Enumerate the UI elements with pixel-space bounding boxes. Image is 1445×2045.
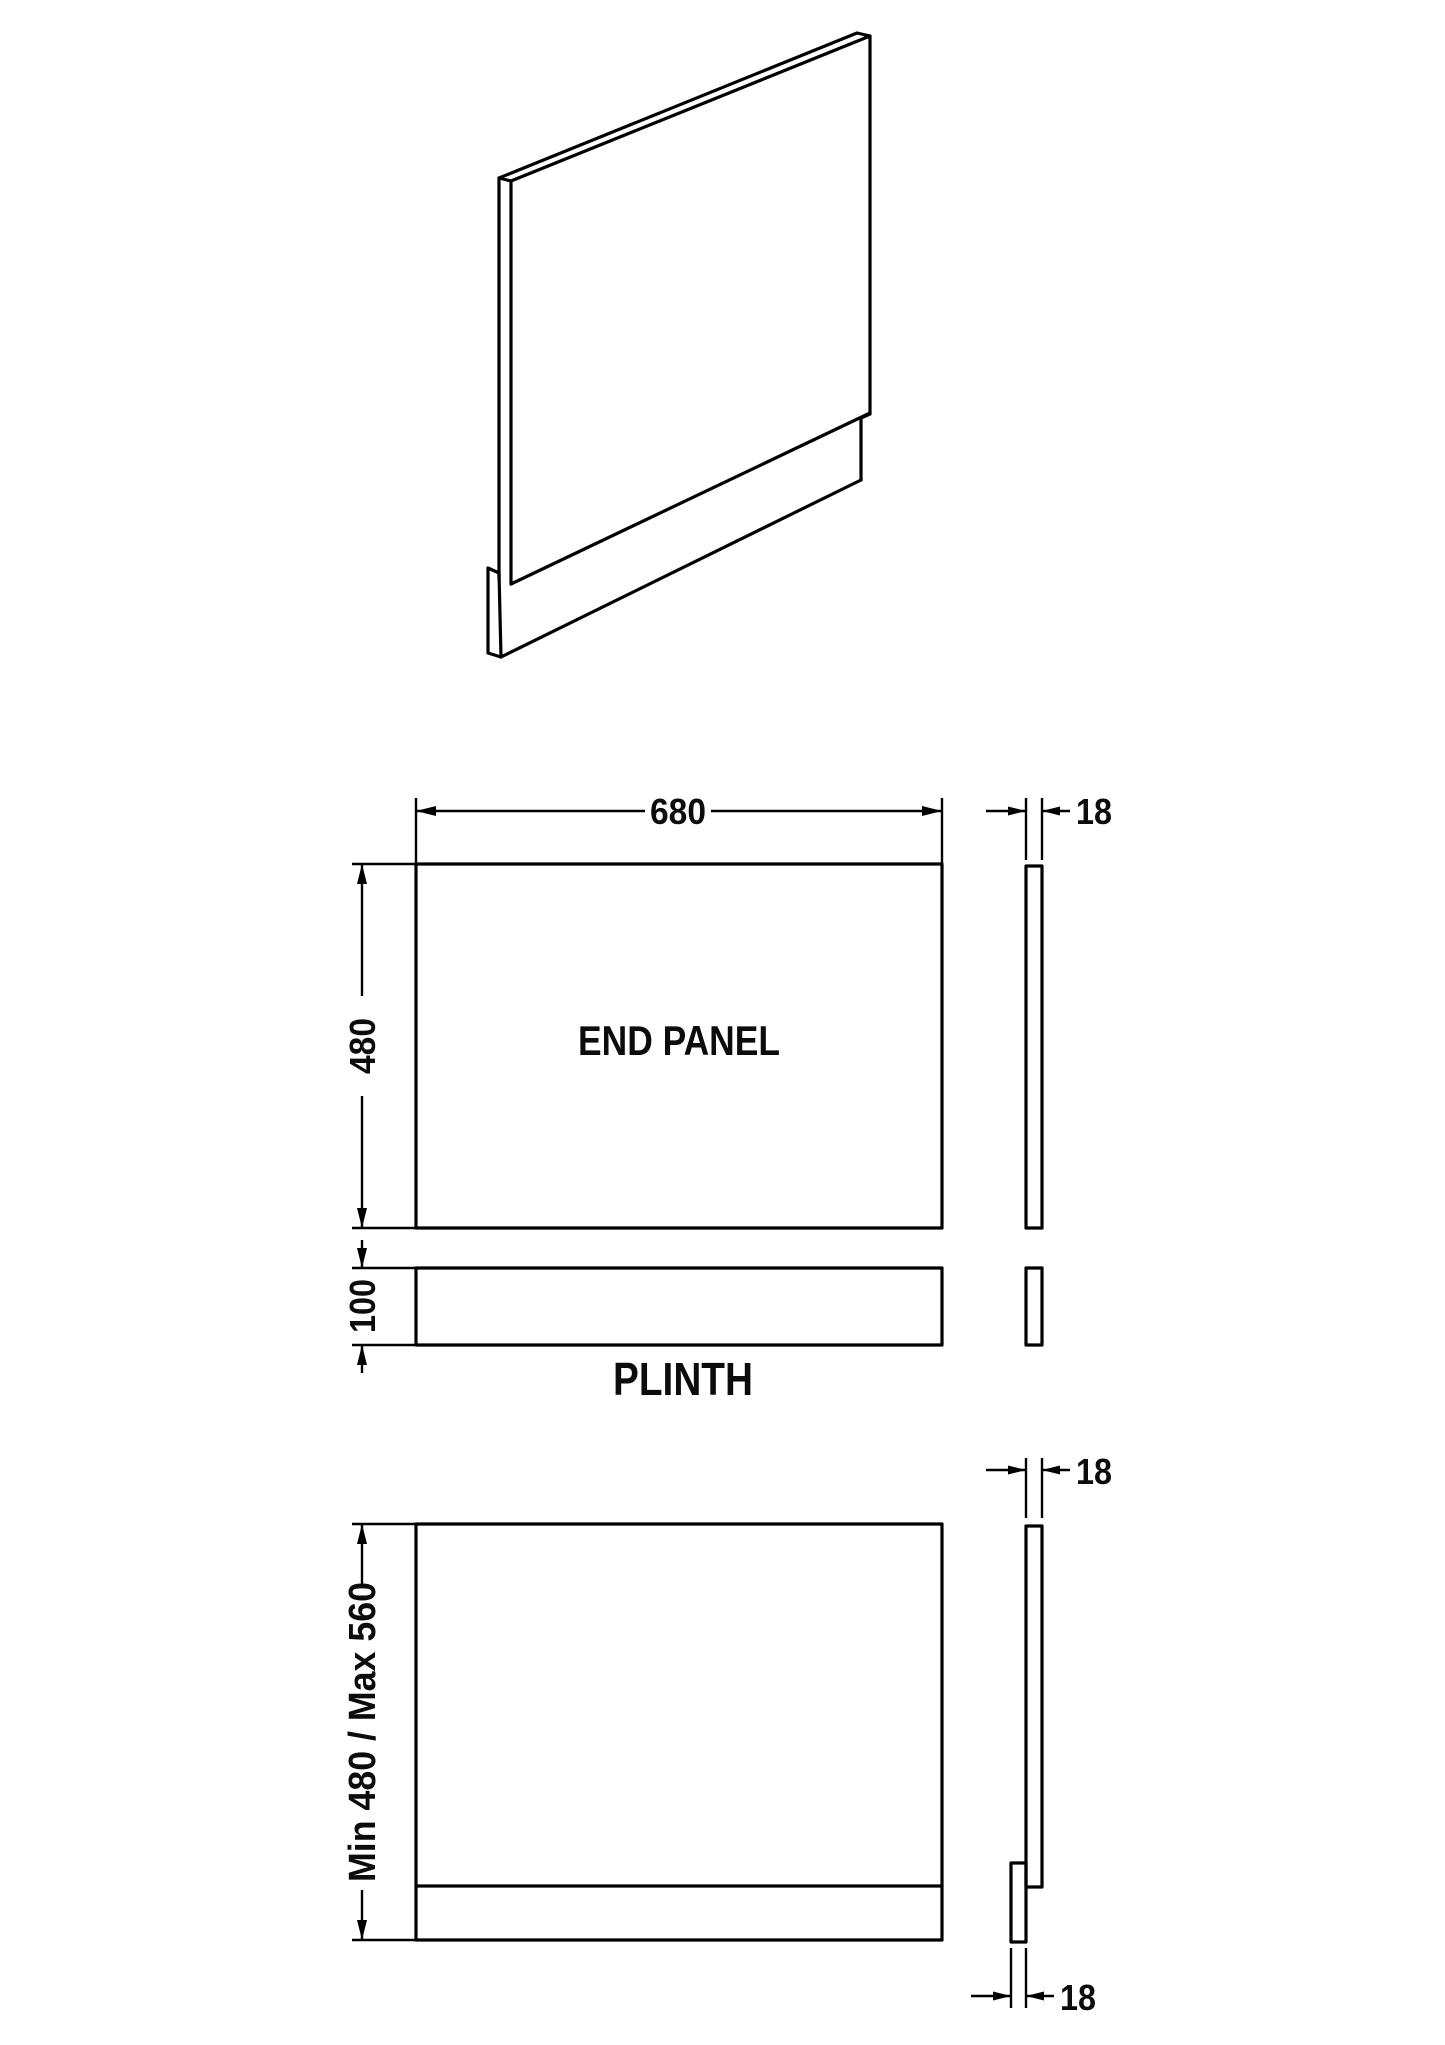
plinth-label: PLINTH <box>613 1353 753 1405</box>
end-panel-side-rect <box>1026 866 1042 1228</box>
front-view-end-panel: END PANEL 680 480 <box>342 791 1112 1228</box>
end-panel-label: END PANEL <box>578 1017 780 1064</box>
dim-18-assembled-plinth: 18 <box>971 1948 1096 2018</box>
technical-drawing-page: END PANEL 680 480 <box>0 0 1445 2045</box>
dim-18-assembled-panel: 18 <box>986 1451 1112 1518</box>
dim-480-text: 480 <box>342 1018 383 1074</box>
dim-18-panel: 18 <box>986 791 1112 860</box>
iso-plinth-right-end <box>861 414 870 480</box>
dim-18-panel-text: 18 <box>1076 791 1112 832</box>
plinth-front-rect <box>416 1268 942 1345</box>
plinth-side-rect <box>1026 1268 1042 1345</box>
dim-min-max-text: Min 480 / Max 560 <box>342 1582 384 1882</box>
assembled-plinth-side-rect <box>1011 1863 1026 1942</box>
dim-680: 680 <box>416 791 942 864</box>
assembled-panel-side-rect <box>1026 1526 1042 1887</box>
end-panel-technical-drawing: END PANEL 680 480 <box>0 0 1445 2045</box>
dim-18-assembled-panel-text: 18 <box>1076 1451 1112 1492</box>
front-view-plinth: 100 PLINTH <box>342 1240 1042 1405</box>
dim-100: 100 <box>342 1240 416 1373</box>
assembled-front-rect <box>416 1524 942 1940</box>
iso-panel-bottom-edge <box>511 413 870 584</box>
dim-480: 480 <box>342 864 416 1228</box>
iso-panel-top-face <box>499 33 870 181</box>
iso-panel-left-face <box>499 178 511 584</box>
dim-18-assembled-plinth-text: 18 <box>1060 1977 1096 2018</box>
iso-plinth-left-end <box>488 568 501 657</box>
dim-100-text: 100 <box>342 1279 383 1333</box>
dim-min-max: Min 480 / Max 560 <box>342 1524 416 1940</box>
dim-680-text: 680 <box>650 791 706 832</box>
isometric-view <box>488 33 870 657</box>
iso-plinth-bottom-edge <box>501 480 861 657</box>
front-view-assembled: Min 480 / Max 560 18 18 <box>342 1451 1112 2018</box>
